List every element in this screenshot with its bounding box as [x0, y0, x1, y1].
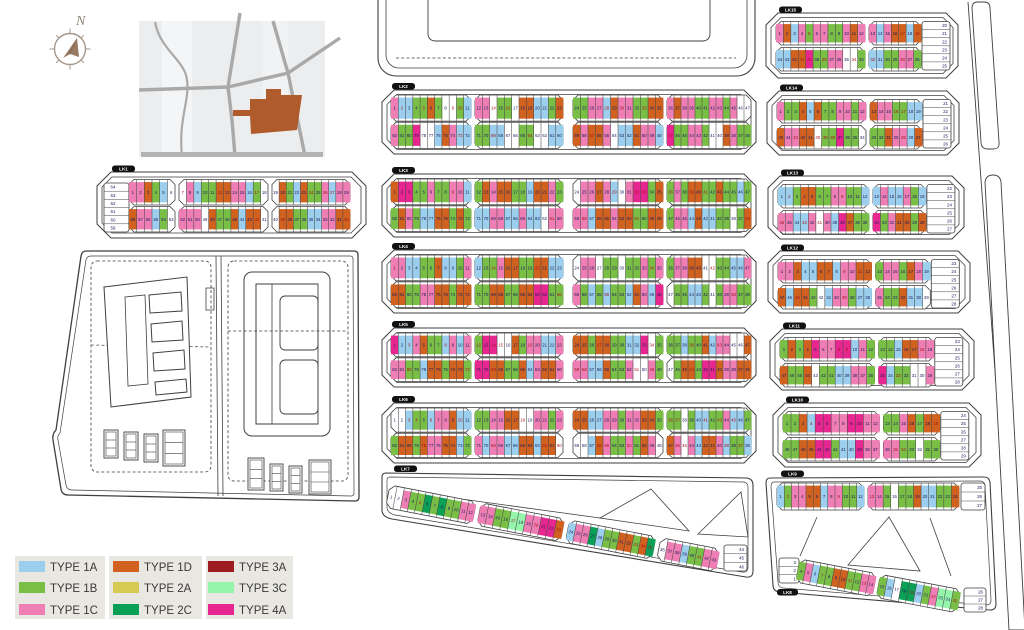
svg-text:37: 37	[858, 295, 863, 300]
svg-text:14: 14	[888, 347, 893, 352]
svg-text:52: 52	[627, 133, 632, 138]
svg-text:38: 38	[682, 265, 687, 270]
svg-text:38: 38	[731, 367, 736, 372]
svg-text:33: 33	[642, 418, 647, 423]
svg-text:44: 44	[689, 367, 694, 372]
svg-text:17: 17	[513, 342, 518, 347]
svg-text:11: 11	[852, 31, 857, 36]
svg-text:13: 13	[484, 342, 489, 347]
svg-text:20: 20	[280, 190, 285, 195]
svg-text:43: 43	[793, 135, 798, 140]
svg-text:40: 40	[717, 443, 722, 448]
svg-text:29: 29	[344, 190, 349, 195]
svg-text:15: 15	[498, 342, 503, 347]
svg-text:67: 67	[506, 292, 511, 297]
svg-text:15: 15	[498, 189, 503, 194]
svg-text:17: 17	[900, 494, 905, 499]
svg-text:10: 10	[850, 269, 855, 274]
svg-text:18: 18	[925, 421, 930, 426]
svg-text:60: 60	[557, 367, 562, 372]
svg-text:44: 44	[777, 57, 782, 62]
svg-text:23: 23	[951, 261, 956, 266]
svg-text:LK12: LK12	[787, 245, 799, 250]
svg-text:45: 45	[731, 189, 736, 194]
svg-text:29: 29	[612, 189, 617, 194]
svg-text:38: 38	[682, 418, 687, 423]
svg-text:26: 26	[961, 429, 966, 434]
svg-text:TYPE 1A: TYPE 1A	[50, 562, 98, 574]
svg-text:36: 36	[745, 216, 750, 221]
svg-text:39: 39	[689, 265, 694, 270]
svg-text:70: 70	[484, 292, 489, 297]
svg-text:27: 27	[597, 342, 602, 347]
svg-text:22: 22	[550, 265, 555, 270]
svg-text:63: 63	[111, 193, 116, 198]
svg-text:23: 23	[942, 47, 947, 52]
svg-text:25: 25	[951, 277, 956, 282]
svg-text:42: 42	[792, 57, 797, 62]
svg-text:62: 62	[111, 201, 116, 206]
svg-text:48: 48	[657, 292, 662, 297]
svg-text:36: 36	[668, 189, 673, 194]
svg-text:16: 16	[894, 109, 899, 114]
svg-text:38: 38	[731, 216, 736, 221]
svg-text:61: 61	[550, 133, 555, 138]
svg-text:11: 11	[853, 109, 858, 114]
svg-text:38: 38	[287, 217, 292, 222]
svg-text:17: 17	[513, 189, 518, 194]
svg-text:46: 46	[738, 189, 743, 194]
svg-text:25: 25	[955, 355, 960, 360]
svg-text:55: 55	[604, 443, 609, 448]
svg-text:46: 46	[801, 447, 806, 452]
svg-text:37: 37	[675, 342, 680, 347]
svg-text:61: 61	[550, 443, 555, 448]
svg-text:11: 11	[465, 418, 470, 423]
svg-text:29: 29	[893, 57, 898, 62]
svg-text:38: 38	[822, 57, 827, 62]
svg-text:37: 37	[675, 106, 680, 111]
svg-text:23: 23	[557, 106, 562, 111]
svg-text:46: 46	[675, 133, 680, 138]
svg-text:69: 69	[491, 133, 496, 138]
svg-text:30: 30	[894, 135, 899, 140]
svg-text:27: 27	[330, 190, 335, 195]
svg-text:47: 47	[668, 133, 673, 138]
svg-text:44: 44	[724, 106, 729, 111]
svg-text:36: 36	[855, 220, 860, 225]
svg-text:17: 17	[917, 421, 922, 426]
svg-text:52: 52	[627, 367, 632, 372]
svg-text:47: 47	[745, 106, 750, 111]
svg-text:60: 60	[557, 292, 562, 297]
svg-text:LK7: LK7	[401, 466, 410, 471]
svg-text:27: 27	[951, 293, 956, 298]
svg-text:15: 15	[889, 194, 894, 199]
svg-text:41: 41	[710, 367, 715, 372]
svg-text:20: 20	[535, 342, 540, 347]
svg-text:27: 27	[597, 106, 602, 111]
svg-text:51: 51	[634, 367, 639, 372]
svg-text:19: 19	[915, 494, 920, 499]
svg-text:39: 39	[280, 217, 285, 222]
svg-text:11: 11	[865, 421, 870, 426]
svg-text:26: 26	[589, 106, 594, 111]
svg-text:68: 68	[498, 133, 503, 138]
svg-text:54: 54	[612, 367, 617, 372]
svg-text:47: 47	[668, 292, 673, 297]
svg-text:78: 78	[421, 292, 426, 297]
svg-text:64: 64	[528, 292, 533, 297]
svg-text:15: 15	[901, 421, 906, 426]
svg-text:21: 21	[542, 265, 547, 270]
svg-text:75: 75	[443, 367, 448, 372]
svg-text:41: 41	[817, 220, 822, 225]
svg-text:44: 44	[240, 217, 245, 222]
svg-text:46: 46	[675, 443, 680, 448]
svg-text:35: 35	[863, 220, 868, 225]
svg-text:34: 34	[649, 342, 654, 347]
svg-text:27: 27	[947, 227, 952, 232]
svg-text:26: 26	[947, 218, 952, 223]
svg-text:50: 50	[642, 367, 647, 372]
svg-text:35: 35	[657, 265, 662, 270]
svg-text:36: 36	[865, 295, 870, 300]
svg-text:LK11: LK11	[789, 323, 800, 328]
svg-text:42: 42	[710, 106, 715, 111]
svg-text:31: 31	[627, 189, 632, 194]
svg-text:37: 37	[675, 189, 680, 194]
svg-text:45: 45	[787, 220, 792, 225]
svg-text:10: 10	[458, 418, 463, 423]
svg-text:39: 39	[689, 418, 694, 423]
svg-text:34: 34	[316, 217, 321, 222]
svg-text:23: 23	[943, 117, 948, 122]
svg-text:61: 61	[550, 292, 555, 297]
svg-text:60: 60	[111, 217, 116, 222]
svg-text:26: 26	[955, 363, 960, 368]
svg-text:18: 18	[520, 106, 525, 111]
svg-text:46: 46	[789, 373, 794, 378]
svg-text:12: 12	[863, 194, 868, 199]
svg-text:71: 71	[476, 443, 481, 448]
svg-text:43: 43	[696, 216, 701, 221]
svg-text:14: 14	[882, 194, 887, 199]
svg-text:13: 13	[870, 31, 875, 36]
svg-text:61: 61	[550, 367, 555, 372]
svg-text:25: 25	[582, 418, 587, 423]
svg-text:66: 66	[513, 443, 518, 448]
svg-text:42: 42	[710, 265, 715, 270]
svg-text:71: 71	[476, 292, 481, 297]
svg-text:16: 16	[506, 189, 511, 194]
svg-text:21: 21	[287, 190, 292, 195]
svg-text:82: 82	[392, 216, 397, 221]
svg-text:13: 13	[869, 494, 874, 499]
svg-text:18: 18	[907, 494, 912, 499]
svg-text:36: 36	[868, 373, 873, 378]
svg-text:37: 37	[848, 220, 853, 225]
svg-text:34: 34	[851, 57, 856, 62]
svg-text:40: 40	[696, 342, 701, 347]
svg-text:11: 11	[858, 269, 863, 274]
svg-text:24: 24	[574, 418, 579, 423]
svg-text:30: 30	[619, 418, 624, 423]
svg-text:29: 29	[612, 106, 617, 111]
svg-text:27: 27	[977, 503, 982, 508]
svg-text:15: 15	[498, 418, 503, 423]
svg-text:43: 43	[717, 265, 722, 270]
svg-text:33: 33	[642, 189, 647, 194]
svg-text:29: 29	[961, 454, 966, 459]
svg-text:39: 39	[724, 216, 729, 221]
svg-text:32: 32	[901, 295, 906, 300]
svg-text:17: 17	[905, 194, 910, 199]
svg-text:55: 55	[604, 133, 609, 138]
svg-text:11: 11	[861, 347, 866, 352]
svg-text:14: 14	[232, 190, 237, 195]
svg-text:17: 17	[513, 106, 518, 111]
svg-text:43: 43	[696, 133, 701, 138]
svg-text:46: 46	[738, 418, 743, 423]
svg-text:22: 22	[550, 106, 555, 111]
svg-text:33: 33	[893, 295, 898, 300]
svg-text:32: 32	[634, 189, 639, 194]
svg-text:38: 38	[852, 373, 857, 378]
svg-text:24: 24	[574, 342, 579, 347]
svg-text:10: 10	[203, 190, 208, 195]
svg-text:TYPE 2C: TYPE 2C	[144, 605, 192, 617]
svg-text:42: 42	[710, 418, 715, 423]
svg-text:18: 18	[262, 190, 267, 195]
svg-text:81: 81	[400, 367, 405, 372]
svg-text:21: 21	[943, 101, 948, 106]
svg-text:14: 14	[877, 494, 882, 499]
svg-text:74: 74	[450, 367, 455, 372]
svg-text:41: 41	[703, 106, 708, 111]
svg-text:25: 25	[582, 265, 587, 270]
svg-text:27: 27	[597, 265, 602, 270]
svg-text:44: 44	[817, 447, 822, 452]
svg-text:11: 11	[465, 265, 470, 270]
svg-text:40: 40	[834, 295, 839, 300]
svg-text:40: 40	[807, 57, 812, 62]
svg-text:25: 25	[582, 189, 587, 194]
svg-text:15: 15	[885, 31, 890, 36]
svg-text:40: 40	[717, 292, 722, 297]
svg-text:32: 32	[917, 447, 922, 452]
svg-text:65: 65	[520, 367, 525, 372]
svg-text:57: 57	[138, 217, 143, 222]
svg-text:45: 45	[682, 443, 687, 448]
svg-text:62: 62	[542, 133, 547, 138]
svg-text:51: 51	[634, 292, 639, 297]
svg-text:76: 76	[436, 367, 441, 372]
svg-text:27: 27	[907, 57, 912, 62]
svg-text:44: 44	[724, 342, 729, 347]
svg-text:14: 14	[491, 189, 496, 194]
svg-text:31: 31	[627, 418, 632, 423]
svg-text:48: 48	[657, 443, 662, 448]
svg-text:55: 55	[604, 216, 609, 221]
svg-text:LK5: LK5	[399, 322, 408, 327]
svg-text:TYPE 2A: TYPE 2A	[144, 583, 192, 595]
svg-text:13: 13	[484, 265, 489, 270]
svg-text:43: 43	[717, 106, 722, 111]
svg-text:19: 19	[915, 31, 920, 36]
svg-text:11: 11	[855, 194, 860, 199]
svg-text:19: 19	[528, 189, 533, 194]
svg-text:34: 34	[901, 447, 906, 452]
svg-text:46: 46	[225, 217, 230, 222]
svg-text:22: 22	[550, 342, 555, 347]
svg-text:29: 29	[912, 220, 917, 225]
svg-text:LK6: LK6	[399, 397, 408, 402]
svg-text:41: 41	[710, 216, 715, 221]
svg-text:63: 63	[535, 367, 540, 372]
svg-text:19: 19	[528, 342, 533, 347]
svg-text:78: 78	[421, 216, 426, 221]
svg-text:60: 60	[557, 133, 562, 138]
svg-text:42: 42	[703, 216, 708, 221]
svg-text:22: 22	[294, 190, 299, 195]
svg-text:24: 24	[947, 202, 952, 207]
svg-text:39: 39	[842, 295, 847, 300]
svg-text:45: 45	[795, 295, 800, 300]
svg-text:77: 77	[429, 292, 434, 297]
svg-text:43: 43	[825, 447, 830, 452]
svg-text:LK15: LK15	[785, 7, 797, 12]
svg-text:54: 54	[612, 216, 617, 221]
svg-text:LK1: LK1	[119, 166, 128, 171]
svg-text:41: 41	[703, 265, 708, 270]
svg-text:53: 53	[619, 367, 624, 372]
svg-text:TYPE 1D: TYPE 1D	[144, 562, 192, 574]
svg-text:59: 59	[111, 226, 116, 231]
svg-text:47: 47	[745, 418, 750, 423]
svg-text:50: 50	[642, 292, 647, 297]
svg-text:74: 74	[450, 133, 455, 138]
svg-text:42: 42	[710, 342, 715, 347]
svg-text:30: 30	[619, 265, 624, 270]
svg-text:48: 48	[657, 133, 662, 138]
svg-text:11: 11	[465, 189, 470, 194]
svg-text:23: 23	[557, 418, 562, 423]
svg-text:40: 40	[273, 217, 278, 222]
svg-text:39: 39	[857, 447, 862, 452]
svg-text:52: 52	[627, 443, 632, 448]
svg-text:43: 43	[247, 217, 252, 222]
svg-text:55: 55	[604, 292, 609, 297]
svg-text:25: 25	[977, 485, 982, 490]
svg-text:19: 19	[933, 421, 938, 426]
svg-text:34: 34	[649, 189, 654, 194]
svg-text:45: 45	[682, 133, 687, 138]
svg-text:LK4: LK4	[399, 244, 408, 249]
svg-text:43: 43	[696, 367, 701, 372]
svg-text:39: 39	[689, 342, 694, 347]
svg-text:44: 44	[689, 133, 694, 138]
svg-text:41: 41	[826, 295, 831, 300]
svg-text:67: 67	[506, 367, 511, 372]
svg-text:18: 18	[520, 189, 525, 194]
svg-text:80: 80	[407, 292, 412, 297]
svg-text:69: 69	[491, 216, 496, 221]
svg-text:77: 77	[429, 443, 434, 448]
svg-text:81: 81	[400, 216, 405, 221]
svg-text:38: 38	[731, 443, 736, 448]
svg-text:19: 19	[528, 418, 533, 423]
svg-text:47: 47	[782, 373, 787, 378]
svg-text:19: 19	[528, 106, 533, 111]
svg-text:40: 40	[717, 133, 722, 138]
svg-text:47: 47	[780, 295, 785, 300]
svg-text:42: 42	[703, 367, 708, 372]
svg-text:13: 13	[484, 189, 489, 194]
svg-text:30: 30	[933, 447, 938, 452]
svg-text:33: 33	[896, 373, 901, 378]
svg-text:28: 28	[604, 418, 609, 423]
svg-text:51: 51	[188, 217, 193, 222]
svg-text:20: 20	[535, 189, 540, 194]
svg-text:12: 12	[860, 109, 865, 114]
svg-text:29: 29	[901, 135, 906, 140]
svg-text:19: 19	[920, 194, 925, 199]
svg-text:51: 51	[634, 216, 639, 221]
svg-text:10: 10	[845, 109, 850, 114]
svg-text:35: 35	[657, 106, 662, 111]
svg-text:37: 37	[294, 217, 299, 222]
svg-text:82: 82	[392, 367, 397, 372]
svg-text:LK9: LK9	[788, 471, 797, 476]
svg-text:64: 64	[528, 367, 533, 372]
svg-text:LK10: LK10	[792, 397, 804, 402]
svg-text:76: 76	[436, 292, 441, 297]
svg-text:36: 36	[745, 292, 750, 297]
svg-text:44: 44	[724, 418, 729, 423]
svg-text:14: 14	[491, 418, 496, 423]
svg-text:TYPE 1B: TYPE 1B	[50, 583, 98, 595]
svg-text:27: 27	[961, 437, 966, 442]
svg-text:15: 15	[498, 106, 503, 111]
svg-text:31: 31	[627, 265, 632, 270]
svg-text:24: 24	[574, 265, 579, 270]
svg-text:75: 75	[443, 443, 448, 448]
svg-text:44: 44	[724, 265, 729, 270]
svg-text:18: 18	[912, 194, 917, 199]
svg-text:82: 82	[392, 133, 397, 138]
svg-text:52: 52	[627, 216, 632, 221]
svg-text:57: 57	[589, 292, 594, 297]
svg-text:35: 35	[893, 447, 898, 452]
svg-text:14: 14	[878, 31, 883, 36]
svg-text:10: 10	[848, 194, 853, 199]
svg-text:14: 14	[491, 265, 496, 270]
svg-text:42: 42	[819, 295, 824, 300]
svg-text:17: 17	[900, 31, 905, 36]
svg-text:50: 50	[642, 133, 647, 138]
svg-text:32: 32	[634, 106, 639, 111]
svg-text:40: 40	[717, 367, 722, 372]
svg-text:63: 63	[535, 443, 540, 448]
svg-text:74: 74	[450, 443, 455, 448]
svg-text:33: 33	[642, 265, 647, 270]
svg-text:17: 17	[513, 418, 518, 423]
svg-text:23: 23	[947, 194, 952, 199]
svg-text:59: 59	[574, 133, 579, 138]
svg-text:32: 32	[634, 342, 639, 347]
svg-text:26: 26	[589, 265, 594, 270]
